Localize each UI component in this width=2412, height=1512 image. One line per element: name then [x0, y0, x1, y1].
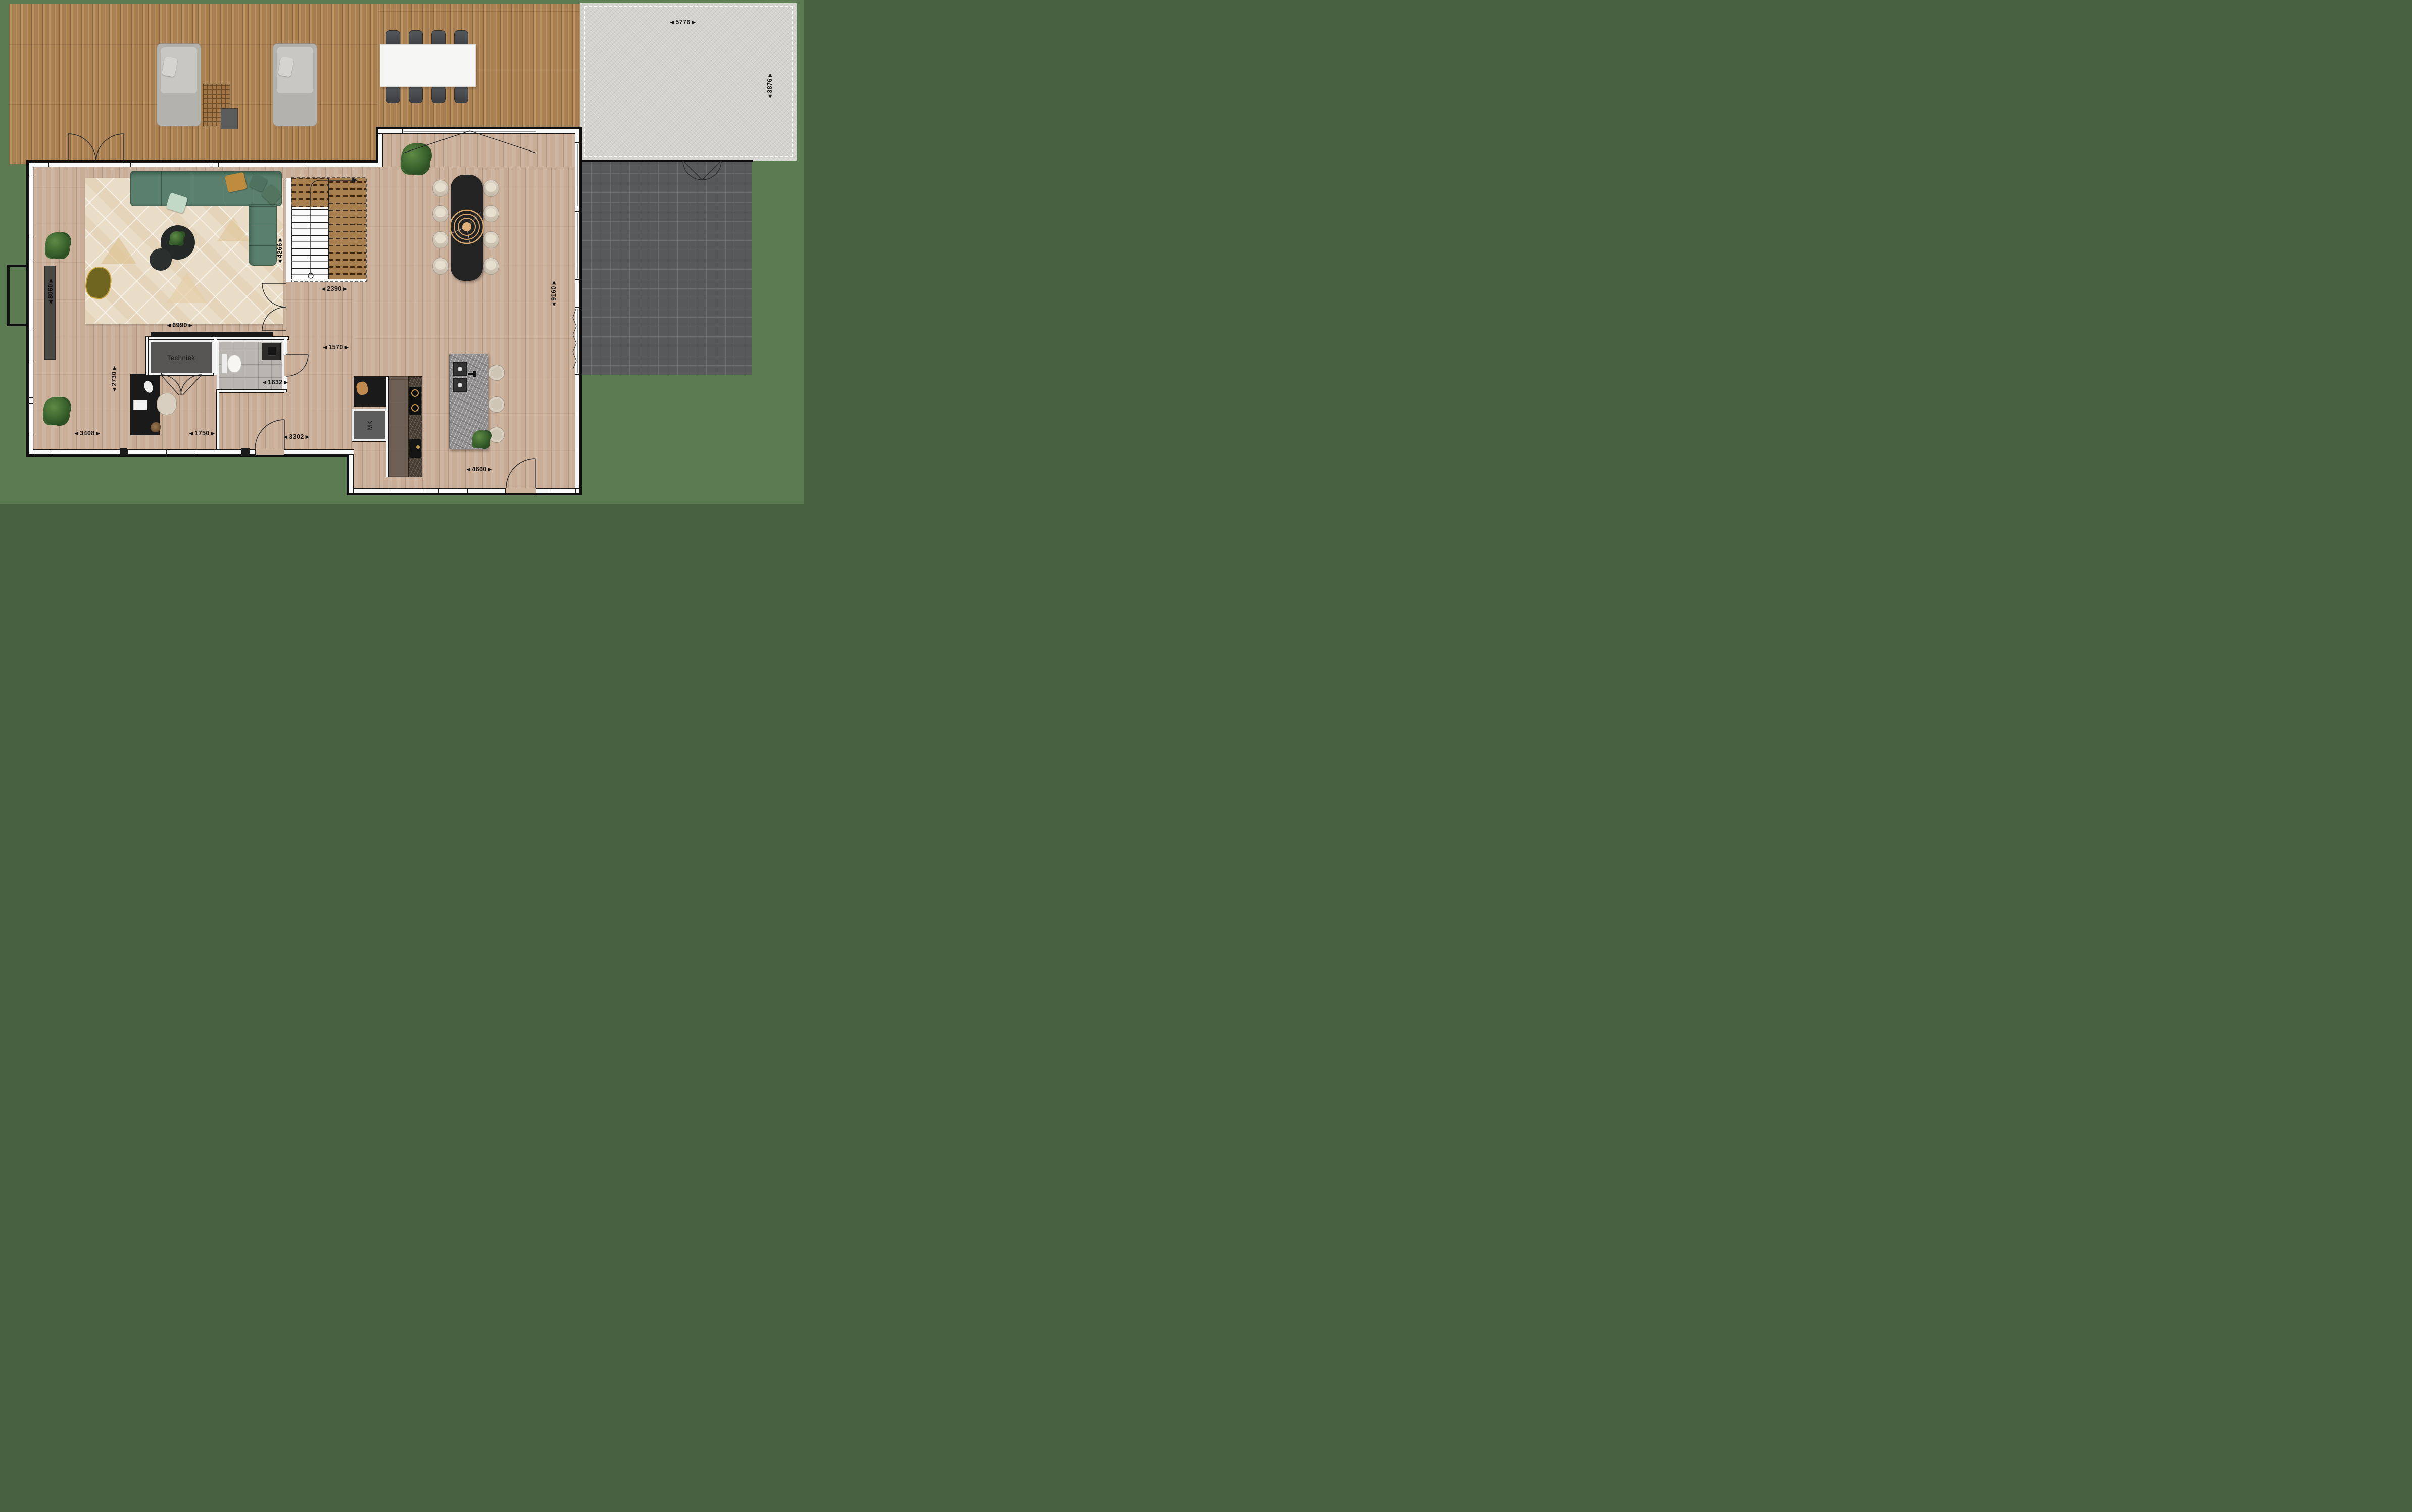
- arrow-left-icon: ◀: [48, 300, 53, 304]
- dimension-value: 9160: [550, 286, 557, 300]
- dimension-hall-depth: ◀ 3302 ▶: [284, 433, 309, 440]
- arrow-left-icon: ◀: [467, 467, 470, 472]
- floor-plan-canvas: Techniek MK: [0, 0, 804, 504]
- dimension-value: 3302: [289, 433, 304, 440]
- dimension-dining-depth: ◀ 9160 ▶: [550, 281, 557, 306]
- dimension-value: 4660: [472, 466, 486, 473]
- dimension-hallway-width: ◀ 1570 ▶: [323, 344, 349, 351]
- arrow-right-icon: ▶: [488, 467, 492, 472]
- dimension-entry-width: ◀ 1750 ▶: [189, 430, 215, 437]
- dimension-value: 8060: [47, 284, 54, 298]
- arrow-right-icon: ▶: [112, 366, 117, 370]
- dimension-value: 3408: [80, 430, 94, 437]
- dimension-value: 1632: [268, 379, 282, 386]
- dimension-value: 5776: [675, 19, 690, 26]
- arrow-left-icon: ◀: [322, 287, 325, 291]
- dimension-value: 3876: [766, 78, 773, 93]
- arrow-left-icon: ◀: [75, 431, 78, 436]
- arrow-left-icon: ◀: [323, 345, 327, 350]
- dimension-value: 6990: [172, 322, 187, 329]
- arrow-right-icon: ▶: [284, 380, 288, 385]
- arrow-right-icon: ▶: [96, 431, 100, 436]
- arrow-left-icon: ◀: [670, 20, 674, 25]
- arrow-right-icon: ▶: [211, 431, 215, 436]
- dimension-stairwell-width: ◀ 2390 ▶: [322, 285, 347, 292]
- arrow-left-icon: ◀: [112, 388, 117, 391]
- arrow-right-icon: ▶: [278, 238, 282, 241]
- dimension-kitchen-width: ◀ 4660 ▶: [467, 466, 492, 473]
- arrow-right-icon: ▶: [189, 323, 192, 328]
- arrow-right-icon: ▶: [306, 435, 309, 439]
- arrow-left-icon: ◀: [768, 95, 772, 98]
- arrow-right-icon: ▶: [345, 345, 349, 350]
- folding-door-symbol: [403, 131, 536, 153]
- dimension-value: 1570: [328, 344, 343, 351]
- dimension-patio-width: ◀ 5776 ▶: [670, 19, 696, 26]
- arrow-right-icon: ▶: [692, 20, 696, 25]
- dimension-value: 4266: [276, 243, 283, 258]
- arrow-left-icon: ◀: [167, 323, 171, 328]
- arrow-left-icon: ◀: [189, 431, 193, 436]
- arrow-right-icon: ▶: [48, 279, 53, 282]
- arrow-right-icon: ▶: [768, 73, 772, 77]
- fixed-glazing-hatch: [573, 309, 576, 369]
- dimension-patio-depth: ◀ 3876 ▶: [766, 73, 773, 98]
- arrow-right-icon: ▶: [552, 281, 556, 284]
- door-swing-arcs: [68, 134, 721, 488]
- dimension-living-depth: ◀ 8060 ▶: [47, 279, 54, 304]
- dimension-value: 1750: [194, 430, 209, 437]
- arrow-left-icon: ◀: [278, 260, 282, 263]
- dimension-living-width: ◀ 6990 ▶: [167, 322, 192, 329]
- dimension-stairwell-depth: ◀ 4266 ▶: [276, 238, 283, 263]
- dimension-office-depth: ◀ 2730 ▶: [111, 366, 118, 391]
- stair-outline-dashed: [291, 178, 366, 282]
- dimension-value: 2730: [111, 371, 118, 386]
- stair-walk-line: [308, 177, 358, 278]
- arrow-left-icon: ◀: [263, 380, 266, 385]
- dimension-toilet-width: ◀ 1632 ▶: [263, 379, 288, 386]
- pendant-light-rings: [450, 210, 483, 243]
- arrow-left-icon: ◀: [284, 435, 287, 439]
- plan-linework-overlay: [0, 0, 804, 504]
- dimension-office-width: ◀ 3408 ▶: [75, 430, 100, 437]
- arrow-left-icon: ◀: [552, 303, 556, 306]
- dimension-value: 2390: [327, 285, 341, 292]
- arrow-right-icon: ▶: [343, 287, 347, 291]
